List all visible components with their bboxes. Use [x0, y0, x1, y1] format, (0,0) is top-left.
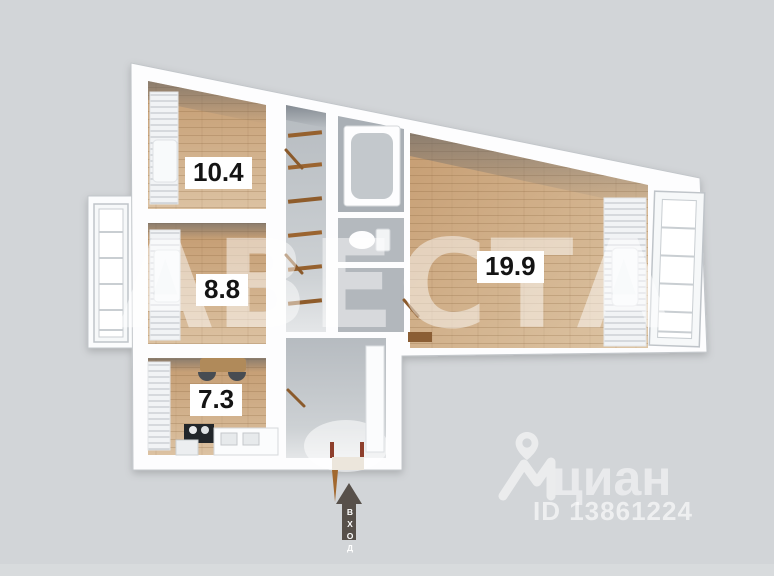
sink [243, 433, 259, 445]
room-area-label-10-4: 10.4 [185, 157, 252, 189]
room-area-label-8-8: 8.8 [196, 274, 248, 306]
room-area-label-19-9: 19.9 [477, 251, 544, 283]
bottom-fade [0, 564, 774, 576]
room-area-label-7-3: 7.3 [190, 384, 242, 416]
floorplan-image: АВЕСТА 10.4 8.8 7.3 19.9 ВХОД циан ID 13… [0, 0, 774, 576]
entrance-label: ВХОД [345, 507, 355, 555]
location-pin-icon [516, 432, 539, 460]
entrance-opening [332, 457, 364, 470]
cian-logo [503, 432, 551, 496]
sink [221, 433, 237, 445]
kitchen-curtain [148, 362, 170, 450]
cian-person-icon [503, 462, 551, 496]
dining-table [200, 358, 246, 372]
bed-pillow [153, 140, 177, 182]
door-jamb [360, 442, 364, 458]
pot [189, 426, 197, 434]
stool [176, 440, 198, 455]
bathroom [338, 116, 404, 212]
pot [201, 426, 209, 434]
bathtub-basin [351, 133, 393, 199]
door-jamb [330, 442, 334, 458]
entrance-door-leaf [332, 470, 338, 502]
hall-wardrobe [366, 346, 384, 452]
listing-id: ID 13861224 [533, 498, 693, 524]
